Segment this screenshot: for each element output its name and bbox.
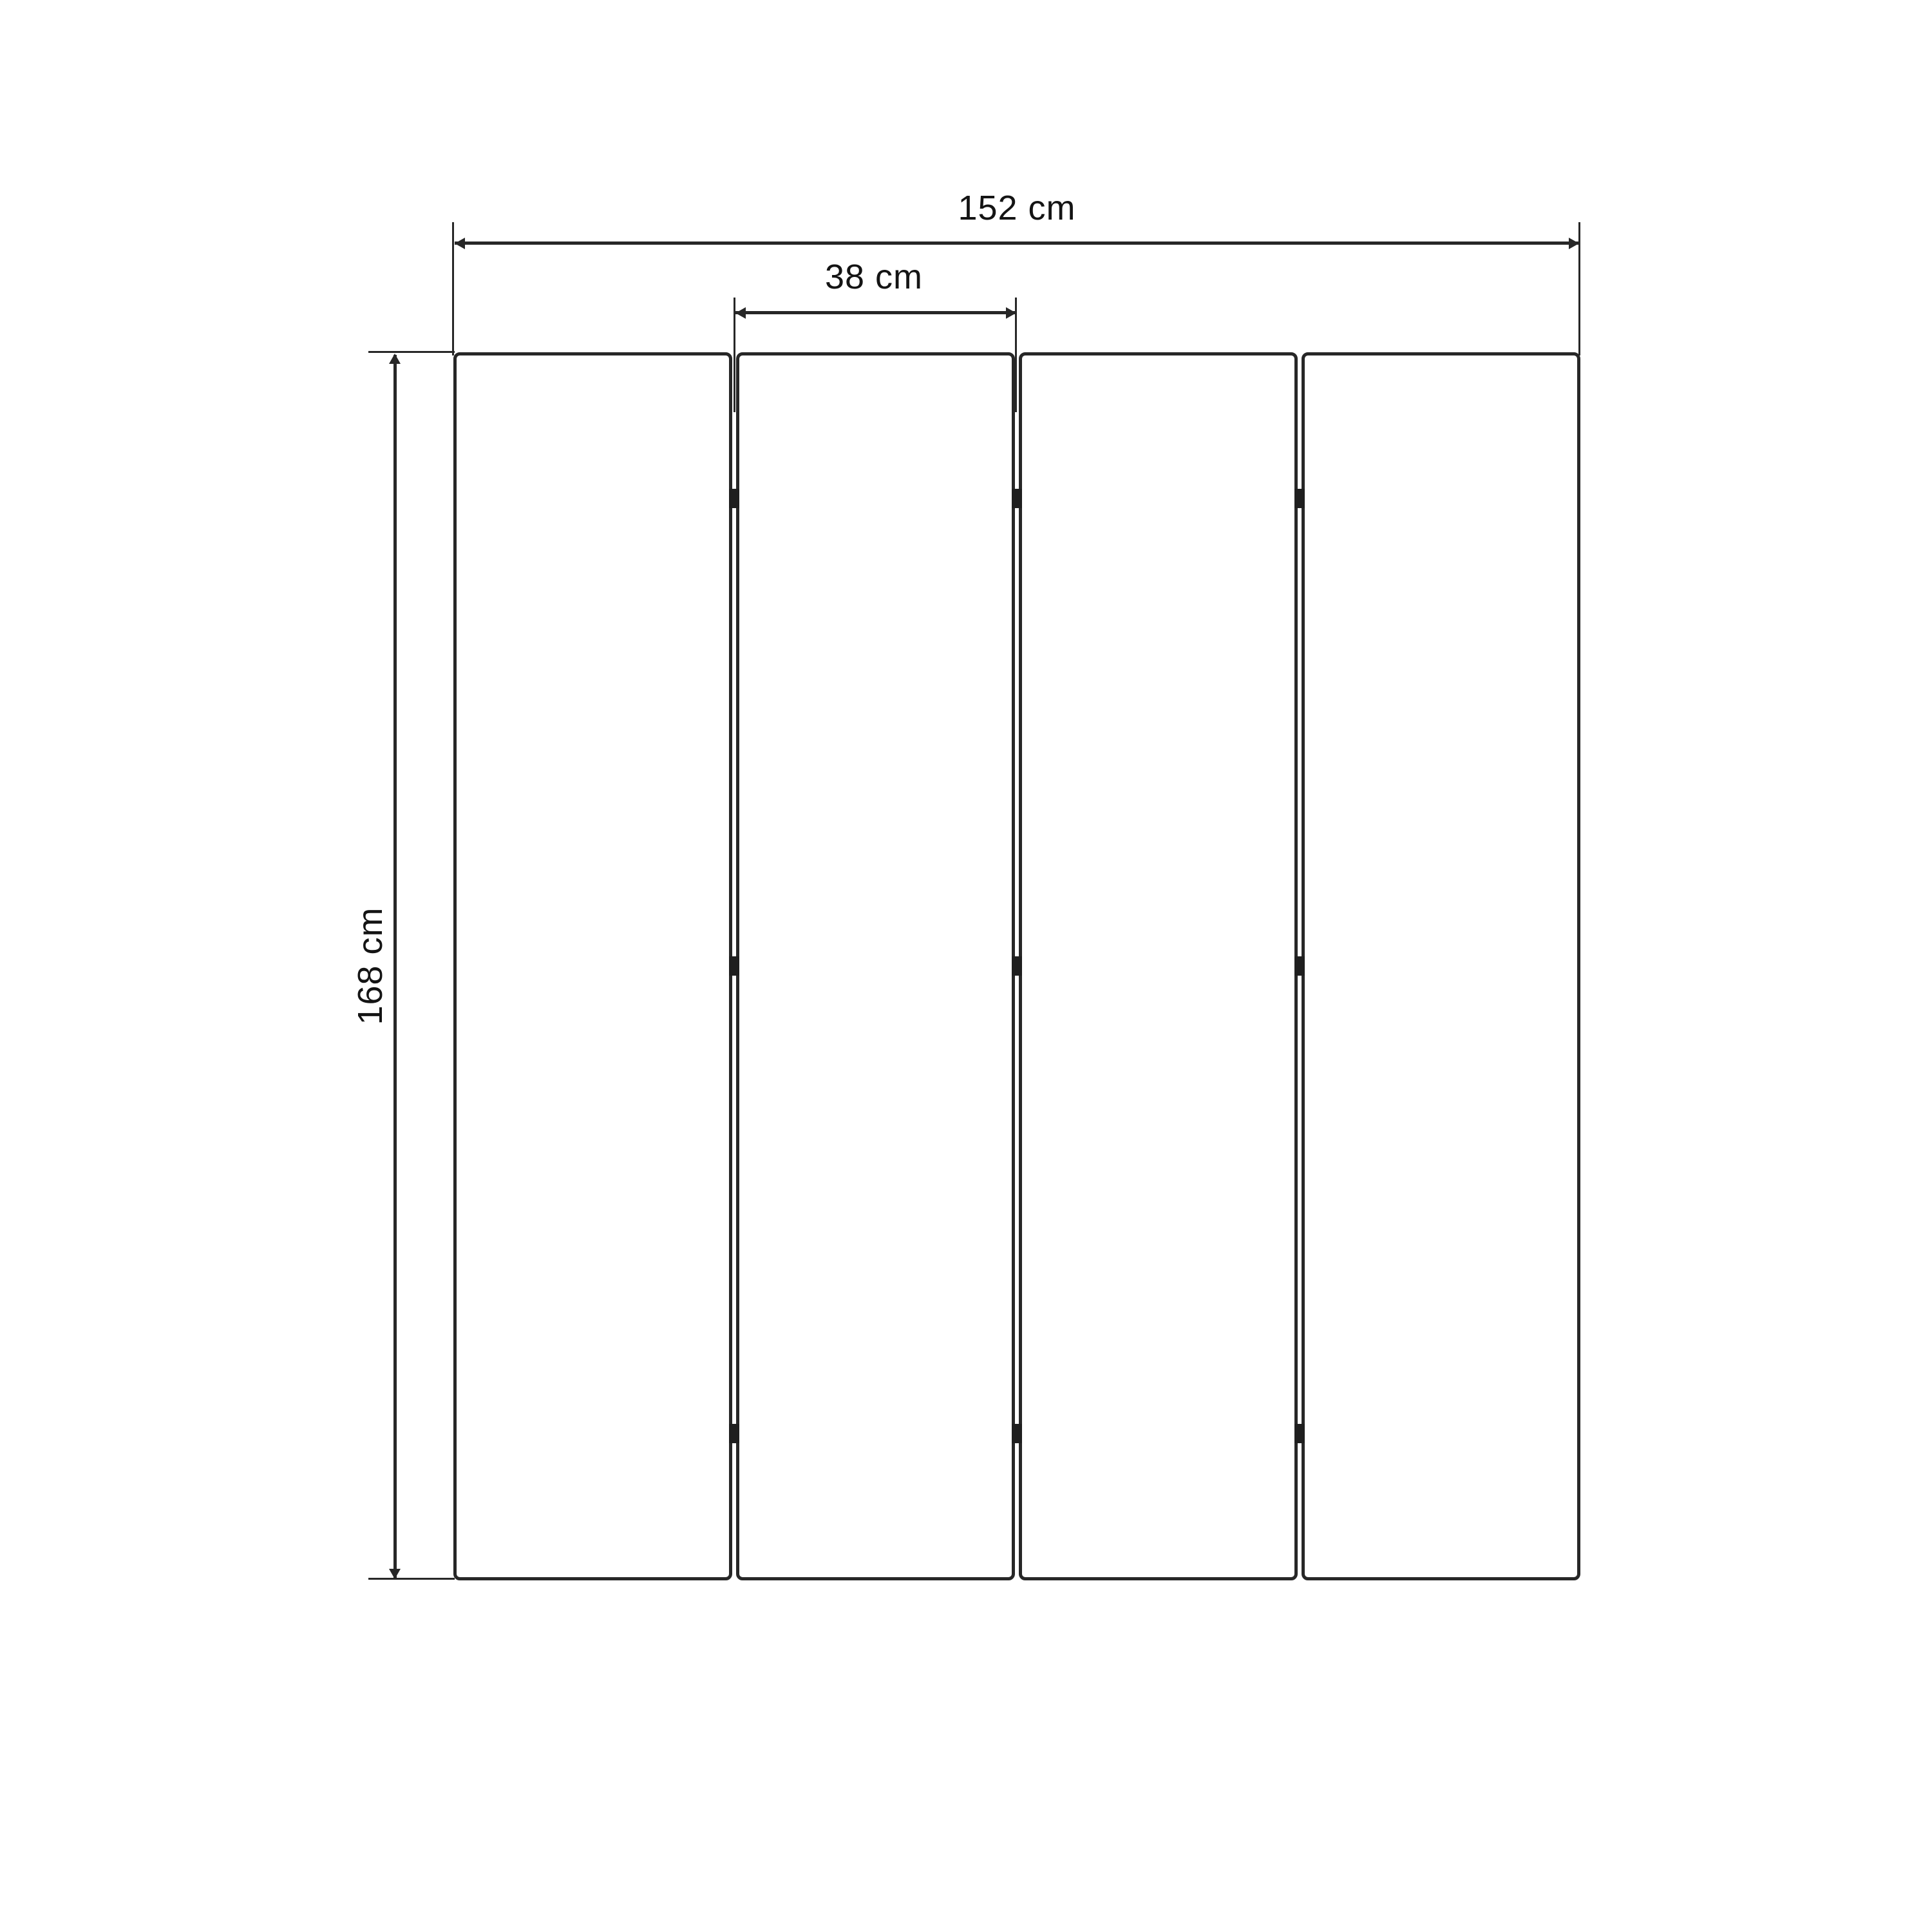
panel-3: [1019, 352, 1298, 1580]
dim-line-height: [393, 355, 397, 1578]
hinge-icon: [1012, 489, 1022, 508]
dim-line-panel-width: [735, 311, 1016, 314]
hinge-icon: [1294, 956, 1305, 976]
hinge-icon: [729, 1424, 739, 1443]
arrowhead-right-icon: [1569, 238, 1579, 249]
dim-line-total-width: [455, 241, 1579, 245]
dim-label-total-width: 152 cm: [888, 189, 1146, 227]
panel-2: [736, 352, 1015, 1580]
hinge-icon: [729, 489, 739, 508]
extension-line-height-bottom: [368, 1578, 455, 1580]
arrowhead-right-icon: [1006, 307, 1016, 319]
dim-label-height: 168 cm: [352, 869, 389, 1063]
panel-4: [1302, 352, 1580, 1580]
extension-line-total-width-left: [452, 222, 454, 355]
hinge-icon: [1012, 1424, 1022, 1443]
dim-label-panel-width: 38 cm: [745, 258, 1003, 296]
extension-line-height-top: [368, 351, 455, 353]
panel-1: [453, 352, 732, 1580]
arrowhead-up-icon: [389, 354, 401, 364]
hinge-icon: [1012, 956, 1022, 976]
arrowhead-left-icon: [735, 307, 746, 319]
hinge-icon: [1294, 1424, 1305, 1443]
arrowhead-down-icon: [389, 1569, 401, 1579]
hinge-icon: [729, 956, 739, 976]
arrowhead-left-icon: [455, 238, 465, 249]
dimension-diagram: 152 cm 38 cm 168 cm: [0, 0, 1932, 1932]
hinge-icon: [1294, 489, 1305, 508]
